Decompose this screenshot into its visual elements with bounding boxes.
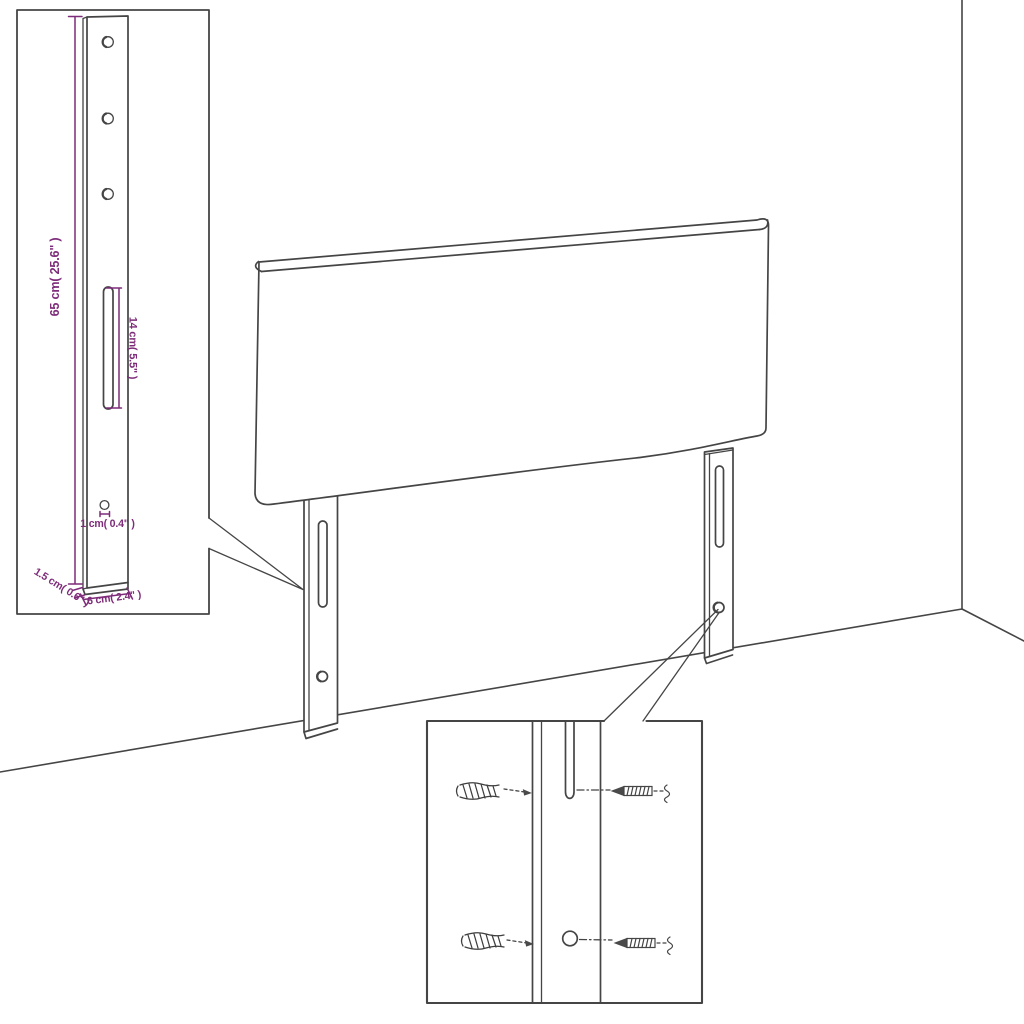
detail-leg-bar <box>83 16 128 595</box>
dim-hole-label: 1 cm( 0.4" ) <box>80 518 134 530</box>
background <box>0 0 1024 1024</box>
assembly-diagram-svg: 65 cm( 25.6" ) 14 cm( 5.5" ) 1 cm( 0.4" … <box>0 0 1024 1024</box>
dim-height-label: 65 cm( 25.6" ) <box>48 238 62 317</box>
dim-slot-label: 14 cm( 5.5" ) <box>127 317 139 380</box>
assembly-diagram: 65 cm( 25.6" ) 14 cm( 5.5" ) 1 cm( 0.4" … <box>0 0 1024 1024</box>
left-leg <box>304 492 338 739</box>
right-leg <box>705 448 734 664</box>
